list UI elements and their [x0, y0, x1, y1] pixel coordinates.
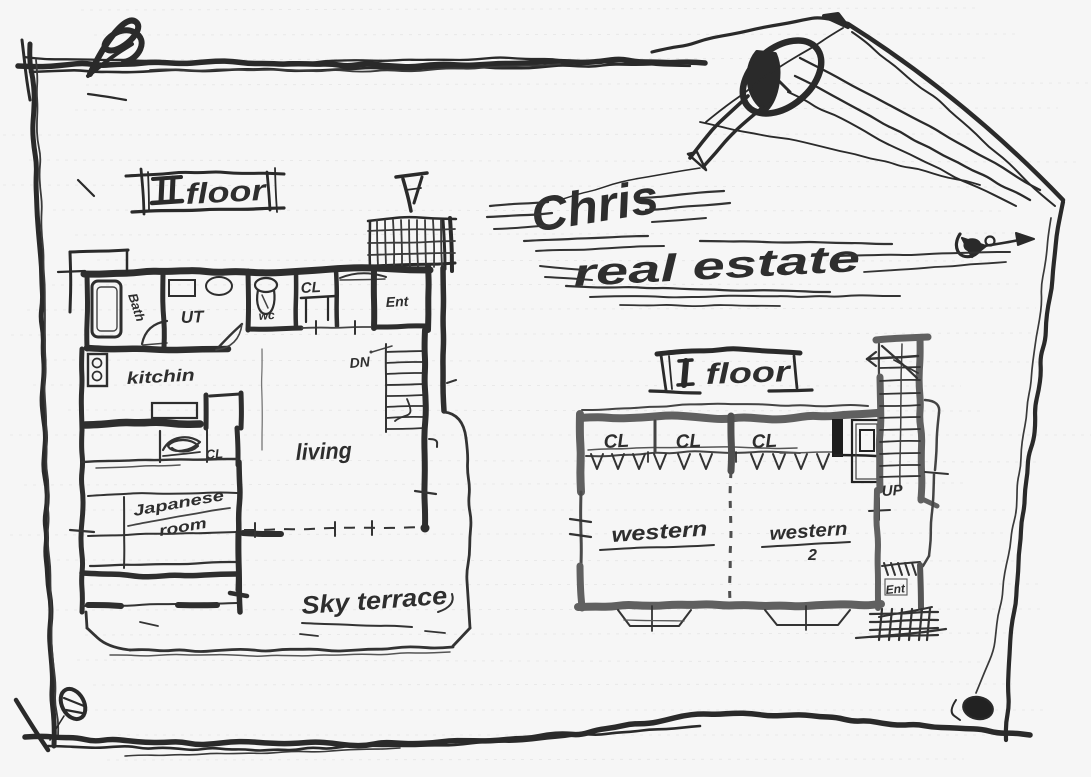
- svg-text:Ent: Ent: [385, 293, 410, 310]
- svg-text:living: living: [295, 437, 352, 465]
- svg-text:wc: wc: [258, 308, 275, 323]
- svg-text:floor: floor: [185, 175, 269, 211]
- svg-text:UP: UP: [881, 482, 904, 500]
- svg-text:floor: floor: [705, 356, 792, 391]
- svg-text:DN: DN: [349, 353, 371, 371]
- svg-text:CL: CL: [675, 431, 701, 453]
- svg-text:CL: CL: [300, 279, 321, 297]
- svg-text:kitchin: kitchin: [126, 365, 195, 388]
- svg-text:UT: UT: [180, 307, 205, 327]
- svg-text:CL: CL: [603, 431, 629, 453]
- svg-text:2: 2: [807, 547, 817, 564]
- svg-text:CL: CL: [751, 431, 777, 453]
